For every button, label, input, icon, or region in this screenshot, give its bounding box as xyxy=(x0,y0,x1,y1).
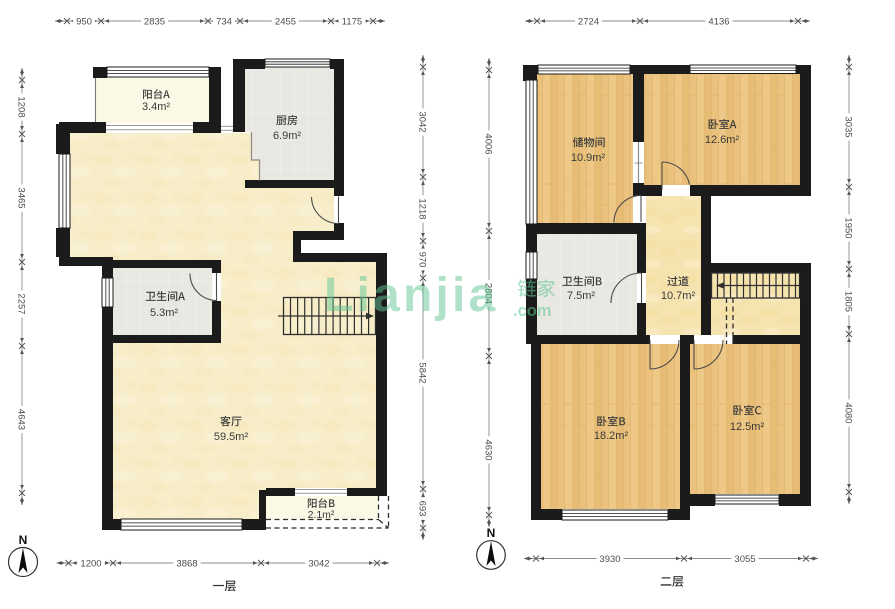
svg-text:3930: 3930 xyxy=(599,554,620,565)
svg-text:1950: 1950 xyxy=(843,217,854,238)
svg-text:7.5m²: 7.5m² xyxy=(567,290,595,302)
svg-text:4006: 4006 xyxy=(483,133,494,154)
svg-text:693: 693 xyxy=(417,501,428,517)
svg-text:1805: 1805 xyxy=(843,291,854,312)
svg-text:3.4m²: 3.4m² xyxy=(142,101,170,113)
svg-text:2835: 2835 xyxy=(144,16,165,27)
svg-text:18.2m²: 18.2m² xyxy=(594,430,629,442)
svg-text:12.6m²: 12.6m² xyxy=(705,134,740,146)
svg-text:4080: 4080 xyxy=(843,402,854,423)
svg-text:1175: 1175 xyxy=(342,16,362,27)
svg-text:3055: 3055 xyxy=(734,554,755,565)
svg-text:10.9m²: 10.9m² xyxy=(571,152,606,164)
svg-text:3465: 3465 xyxy=(16,187,27,208)
svg-text:59.5m²: 59.5m² xyxy=(214,431,249,443)
svg-text:4643: 4643 xyxy=(16,409,27,430)
svg-text:10.7m²: 10.7m² xyxy=(661,290,696,302)
svg-text:4630: 4630 xyxy=(483,439,494,460)
svg-text:N: N xyxy=(487,526,496,540)
svg-text:950: 950 xyxy=(76,16,92,27)
svg-text:.com: .com xyxy=(513,302,552,320)
svg-text:6.9m²: 6.9m² xyxy=(273,130,301,142)
svg-text:4136: 4136 xyxy=(708,16,729,27)
svg-text:2724: 2724 xyxy=(578,16,599,27)
svg-text:734: 734 xyxy=(216,16,232,27)
svg-text:2455: 2455 xyxy=(275,16,296,27)
svg-text:1218: 1218 xyxy=(417,198,428,219)
svg-text:3035: 3035 xyxy=(843,116,854,137)
svg-text:5.3m²: 5.3m² xyxy=(150,307,178,319)
svg-text:2.1m²: 2.1m² xyxy=(308,509,335,521)
svg-text:2257: 2257 xyxy=(16,293,27,314)
svg-text:1200: 1200 xyxy=(80,558,101,569)
svg-text:3042: 3042 xyxy=(308,558,329,569)
svg-text:N: N xyxy=(19,533,28,547)
svg-text:3868: 3868 xyxy=(176,558,197,569)
svg-text:5842: 5842 xyxy=(417,362,428,383)
svg-text:3042: 3042 xyxy=(417,111,428,132)
svg-text:970: 970 xyxy=(417,252,428,268)
svg-text:12.5m²: 12.5m² xyxy=(730,421,765,433)
svg-text:1208: 1208 xyxy=(16,96,27,117)
svg-text:Lianjia: Lianjia xyxy=(324,269,498,322)
